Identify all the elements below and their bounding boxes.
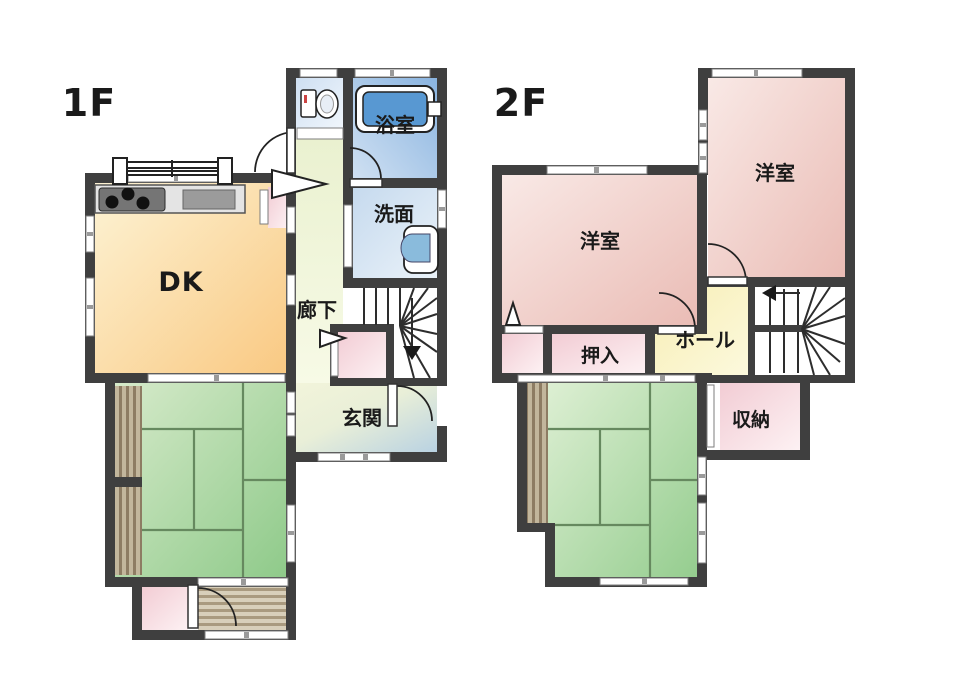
- bedroom-right-door-leaf: [708, 277, 747, 285]
- floor-plan-page: 1F DK 廊下 浴室 洗面 玄関: [0, 0, 958, 689]
- label-oshiire: 押入: [581, 344, 619, 367]
- sink-icon: [183, 190, 235, 209]
- veranda-door-leaf: [188, 585, 198, 628]
- tatami-closet-strip-2f: [525, 383, 548, 523]
- floor-label-1f: 1F: [62, 81, 116, 125]
- label-bedroom-left: 洋室: [580, 229, 620, 253]
- bath-door-leaf: [350, 179, 382, 187]
- tatami-closet-strip-upper: [115, 386, 142, 477]
- floor-label-2f: 2F: [494, 81, 548, 125]
- kitchen-counter-icon: [95, 185, 245, 213]
- floor-plan-svg: 1F DK 廊下 浴室 洗面 玄関: [0, 0, 958, 689]
- floor-2f: 2F 洋室 洋室 押入 ホール 収納: [492, 68, 855, 587]
- closet-1f-bottom: [142, 587, 188, 630]
- washbasin-icon: [401, 226, 438, 273]
- label-entrance: 玄関: [342, 406, 382, 430]
- label-storage: 収納: [732, 408, 770, 431]
- label-corridor: 廊下: [297, 298, 337, 322]
- tatami-closet-strip-lower: [115, 487, 142, 575]
- stove-icon: [99, 188, 165, 212]
- entrance-door-leaf: [388, 384, 397, 426]
- back-door-leaf: [287, 128, 295, 173]
- label-washroom: 洗面: [374, 202, 414, 226]
- closet-2f-left: [502, 334, 543, 373]
- label-bedroom-right: 洋室: [755, 161, 795, 185]
- label-bath: 浴室: [375, 113, 415, 137]
- toilet-icon: [301, 90, 338, 118]
- floor-1f: 1F DK 廊下 浴室 洗面 玄関: [62, 68, 447, 640]
- label-dk: DK: [158, 267, 203, 298]
- veranda: [198, 585, 288, 630]
- label-hall: ホール: [675, 328, 735, 352]
